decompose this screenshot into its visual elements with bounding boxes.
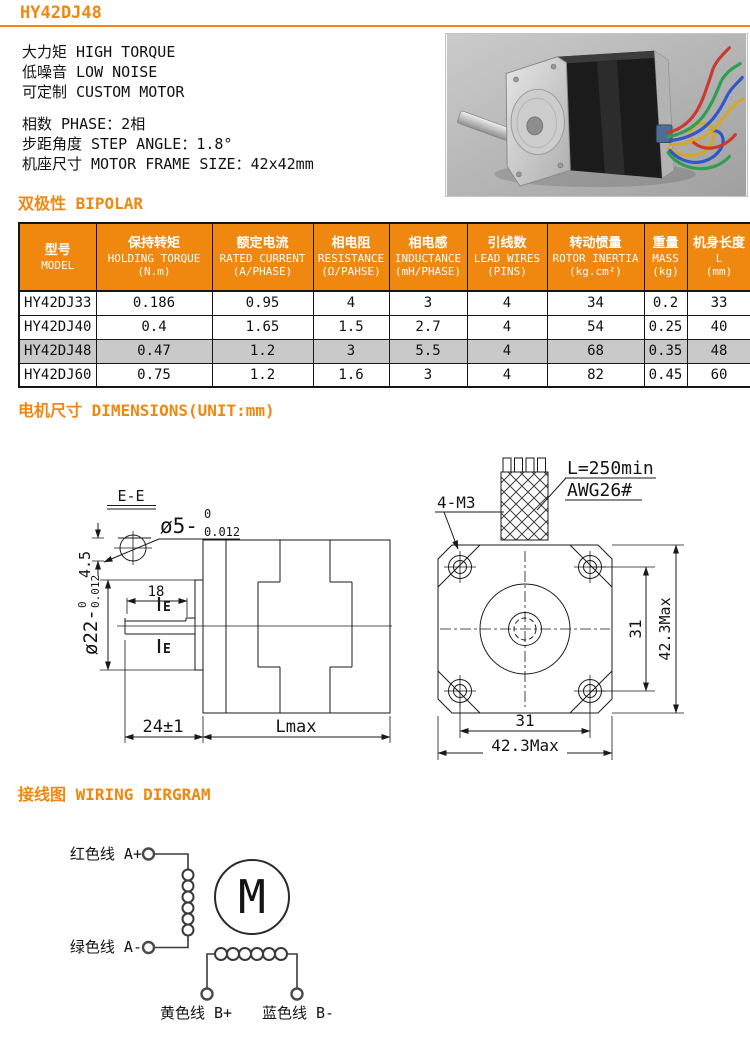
value-cell: 4: [313, 291, 389, 315]
table-row: HY42DJ330.1860.95434340.233: [19, 291, 750, 315]
section-marker-e: E: [163, 642, 171, 657]
col-header-rotor-inertia: 转动惯量ROTOR INERTIA(kg.cm²): [547, 223, 644, 291]
spec-table-wrap: 型号MODEL保持转矩HOLDING TORQUE(N.m)额定电流RATED …: [18, 222, 750, 388]
intro-block: 大力矩 HIGH TORQUE 低噪音 LOW NOISE 可定制 CUSTOM…: [22, 42, 314, 174]
phase-b-winding: 黄色线 B+ 蓝色线 B-: [160, 948, 334, 1022]
value-cell: 82: [547, 363, 644, 387]
dim-shaft-diameter-upper: 0: [204, 507, 211, 521]
product-photo: [445, 33, 748, 197]
value-cell: 54: [547, 315, 644, 339]
lead-gauge-label: AWG26#: [567, 480, 632, 501]
table-row: HY42DJ600.751.21.634820.4560: [19, 363, 750, 387]
lead-length-label: L=250min: [567, 458, 654, 479]
title-rule: [0, 25, 750, 27]
wiring-diagram: 红色线 A+ 绿色线 A- M: [0, 818, 750, 1044]
value-cell: 0.4: [96, 315, 212, 339]
dim-shaft-length: 24±1: [143, 717, 184, 737]
model-cell: HY42DJ48: [19, 339, 96, 363]
value-cell: 1.2: [212, 363, 313, 387]
model-cell: HY42DJ33: [19, 291, 96, 315]
value-cell: 3: [313, 339, 389, 363]
dim-hole-spacing-horizontal: 31: [515, 711, 534, 730]
motor-letter: M: [238, 870, 266, 924]
spec-line: 步距角度 STEP ANGLE：1.8°: [22, 134, 314, 154]
dim-flat-length: 18: [148, 584, 165, 600]
wire-label-a-minus: 绿色线 A-: [70, 938, 142, 956]
value-cell: 0.47: [96, 339, 212, 363]
value-cell: 0.75: [96, 363, 212, 387]
table-header-row: 型号MODEL保持转矩HOLDING TORQUE(N.m)额定电流RATED …: [19, 223, 750, 291]
section-heading-wiring: 接线图 WIRING DIRGRAM: [18, 781, 211, 805]
col-header-lead-wires: 引线数LEAD WIRES(PINS): [467, 223, 547, 291]
dim-hole-spacing-vertical: 31: [626, 619, 645, 638]
dim-pilot-diameter: ø22-: [80, 609, 102, 655]
datasheet-page: HY42DJ48 大力矩 HIGH TORQUE 低噪音 LOW NOISE 可…: [0, 0, 750, 1044]
motor-symbol: M: [215, 860, 289, 934]
dim-shaft-flat-depth: 4.5: [76, 551, 94, 578]
value-cell: 0.35: [644, 339, 687, 363]
front-view: L=250min AWG26# 4-M3: [435, 458, 684, 760]
value-cell: 0.45: [644, 363, 687, 387]
col-header-rated-current: 额定电流RATED CURRENT(A/PHASE): [212, 223, 313, 291]
value-cell: 60: [687, 363, 750, 387]
value-cell: 4: [467, 315, 547, 339]
page-title: HY42DJ48: [20, 3, 102, 23]
value-cell: 0.186: [96, 291, 212, 315]
section-heading-dimensions: 电机尺寸 DIMENSIONS(UNIT:mm): [18, 397, 275, 421]
model-cell: HY42DJ60: [19, 363, 96, 387]
value-cell: 33: [687, 291, 750, 315]
feature-line: 低噪音 LOW NOISE: [22, 62, 314, 82]
dim-shaft-diameter-lower: 0.012: [204, 525, 240, 539]
col-header-mass: 重量MASS(kg): [644, 223, 687, 291]
col-header-inductance: 相电感INDUCTANCE(mH/PHASE): [389, 223, 467, 291]
spec-line: 相数 PHASE：2相: [22, 114, 314, 134]
dim-frame-size-vertical: 42.3Max: [656, 597, 674, 660]
wire-label-a-plus: 红色线 A+: [70, 845, 142, 863]
feature-line: 可定制 CUSTOM MOTOR: [22, 82, 314, 102]
value-cell: 3: [389, 363, 467, 387]
col-header-resistance: 相电阻RESISTANCE(Ω/PAHSE): [313, 223, 389, 291]
value-cell: 1.2: [212, 339, 313, 363]
value-cell: 0.95: [212, 291, 313, 315]
value-cell: 0.25: [644, 315, 687, 339]
mounting-holes-label: 4-M3: [437, 493, 476, 512]
value-cell: 4: [467, 291, 547, 315]
value-cell: 1.5: [313, 315, 389, 339]
table-row: HY42DJ400.41.651.52.74540.2540: [19, 315, 750, 339]
value-cell: 5.5: [389, 339, 467, 363]
table-row: HY42DJ480.471.235.54680.3548: [19, 339, 750, 363]
dim-frame-size-horizontal: 42.3Max: [491, 736, 559, 755]
value-cell: 34: [547, 291, 644, 315]
dim-body-length: Lmax: [276, 717, 317, 737]
wire-label-b-plus: 黄色线 B+: [160, 1004, 232, 1022]
value-cell: 1.6: [313, 363, 389, 387]
section-marker-e: E: [163, 600, 171, 615]
value-cell: 40: [687, 315, 750, 339]
section-heading-bipolar: 双极性 BIPOLAR: [18, 190, 143, 214]
feature-line: 大力矩 HIGH TORQUE: [22, 42, 314, 62]
value-cell: 4: [467, 363, 547, 387]
section-ee-label: E-E: [117, 487, 144, 505]
phase-a-winding: 红色线 A+ 绿色线 A-: [70, 845, 194, 956]
model-cell: HY42DJ40: [19, 315, 96, 339]
dimensions-drawing: E-E 4.5 ø5- 0 0.012: [0, 435, 750, 775]
value-cell: 3: [389, 291, 467, 315]
value-cell: 1.65: [212, 315, 313, 339]
value-cell: 0.2: [644, 291, 687, 315]
spec-table: 型号MODEL保持转矩HOLDING TORQUE(N.m)额定电流RATED …: [18, 222, 750, 388]
col-header-holding-torque: 保持转矩HOLDING TORQUE(N.m): [96, 223, 212, 291]
value-cell: 2.7: [389, 315, 467, 339]
wire-label-b-minus: 蓝色线 B-: [262, 1004, 334, 1022]
col-header-l: 机身长度L(mm): [687, 223, 750, 291]
col-header-model: 型号MODEL: [19, 223, 96, 291]
side-view: E-E 4.5 ø5- 0 0.012: [76, 487, 392, 743]
dim-shaft-diameter: ø5-: [160, 514, 198, 538]
value-cell: 68: [547, 339, 644, 363]
value-cell: 48: [687, 339, 750, 363]
dim-pilot-diameter-lower: 0.012: [89, 575, 102, 608]
spec-line: 机座尺寸 MOTOR FRAME SIZE：42x42mm: [22, 154, 314, 174]
value-cell: 4: [467, 339, 547, 363]
dim-pilot-diameter-upper: 0: [76, 601, 89, 608]
